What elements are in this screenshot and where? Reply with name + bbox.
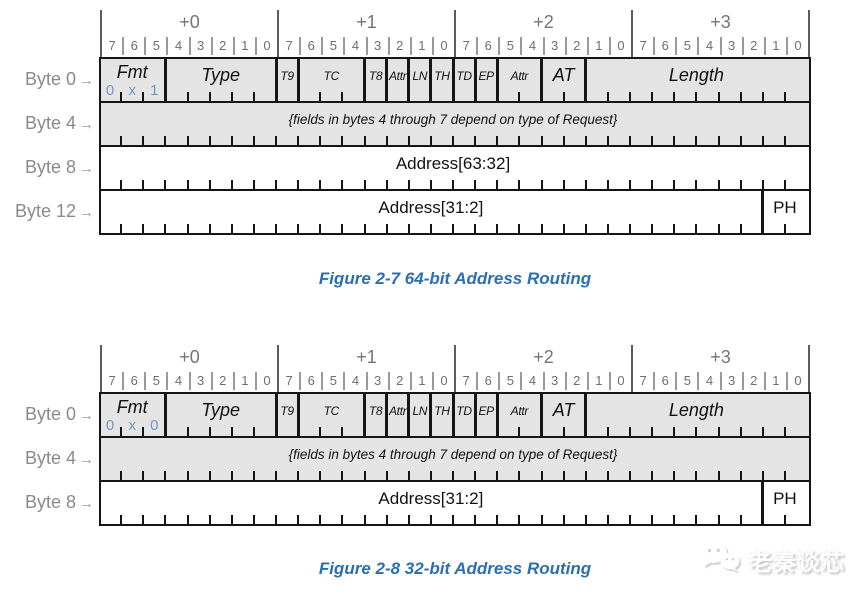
bit-tick bbox=[784, 224, 786, 233]
bit-number-separator bbox=[476, 37, 478, 55]
bit-number: 2 bbox=[389, 371, 411, 391]
bit-number: 0 bbox=[256, 36, 278, 56]
field-label: PH bbox=[773, 489, 797, 509]
bit-tick bbox=[275, 224, 277, 233]
bit-number: 4 bbox=[521, 371, 543, 391]
bit-tick bbox=[297, 224, 299, 233]
figure-2-8-diagram: +0+1+2+376543210765432107654321076543210… bbox=[101, 345, 809, 528]
byte-row: Fmt0x0TypeT9TCT8AttrLNTHTDEPAttrATLength bbox=[99, 392, 811, 438]
bit-tick bbox=[563, 224, 565, 233]
bit-tick bbox=[563, 180, 565, 189]
bit-number-separator bbox=[410, 37, 412, 55]
bit-number-separator bbox=[764, 372, 766, 390]
bit-tick bbox=[164, 180, 166, 189]
bit-tick bbox=[585, 471, 587, 480]
bit-number: 6 bbox=[123, 36, 145, 56]
bit-tick bbox=[474, 471, 476, 480]
bit-number: 0 bbox=[787, 371, 809, 391]
bit-number-separator bbox=[299, 372, 301, 390]
bit-number: 2 bbox=[566, 36, 588, 56]
bit-number: 1 bbox=[765, 36, 787, 56]
bit-number: 2 bbox=[743, 371, 765, 391]
bit-tick bbox=[784, 427, 786, 436]
right-arrow-icon: → bbox=[79, 160, 94, 177]
byte-row-label-text: Byte 4 bbox=[25, 113, 76, 133]
bit-tick bbox=[607, 92, 609, 101]
bit-tick bbox=[740, 224, 742, 233]
bit-tick bbox=[187, 136, 189, 145]
bit-field-cell: TD bbox=[453, 59, 475, 101]
bit-number-separator bbox=[543, 372, 545, 390]
bit-number-separator bbox=[166, 372, 168, 390]
bit-tick bbox=[164, 515, 166, 524]
bit-tick bbox=[187, 515, 189, 524]
bit-tick bbox=[142, 515, 144, 524]
field-label: Fmt bbox=[99, 62, 165, 83]
bit-number-separator bbox=[343, 37, 345, 55]
bit-number-separator bbox=[543, 37, 545, 55]
bit-number: 2 bbox=[212, 371, 234, 391]
bit-number: 7 bbox=[278, 371, 300, 391]
bit-field-cell: Fmt0x1 bbox=[99, 59, 165, 101]
bit-number: 3 bbox=[190, 371, 212, 391]
bit-tick bbox=[496, 471, 498, 480]
bit-field-cell: TC bbox=[298, 394, 364, 436]
bit-number-separator bbox=[122, 37, 124, 55]
bit-number-separator bbox=[343, 372, 345, 390]
watermark: 老秦谈芯 bbox=[700, 540, 845, 579]
bit-tick bbox=[364, 136, 366, 145]
bit-number-separator bbox=[675, 37, 677, 55]
bit-number: 6 bbox=[477, 371, 499, 391]
byte4-note-text: {fields in bytes 4 through 7 depend on t… bbox=[289, 447, 618, 462]
bit-tick bbox=[408, 180, 410, 189]
bit-tick bbox=[673, 92, 675, 101]
bit-number: 4 bbox=[344, 36, 366, 56]
bit-number-separator bbox=[498, 37, 500, 55]
bit-tick bbox=[784, 471, 786, 480]
bit-field-cell: T9 bbox=[276, 394, 298, 436]
bit-tick bbox=[430, 471, 432, 480]
bit-tick bbox=[120, 224, 122, 233]
bit-number: 3 bbox=[544, 36, 566, 56]
bit-number-separator bbox=[520, 37, 522, 55]
bit-field-cell: LN bbox=[409, 59, 431, 101]
bit-tick bbox=[408, 515, 410, 524]
bit-tick bbox=[341, 92, 343, 101]
bit-tick bbox=[364, 180, 366, 189]
bit-number-separator bbox=[653, 37, 655, 55]
bit-number: 3 bbox=[367, 371, 389, 391]
wechat-logo-icon bbox=[700, 540, 742, 579]
field-label: TC bbox=[324, 69, 339, 83]
bit-number-separator bbox=[697, 372, 699, 390]
bit-number: 4 bbox=[698, 371, 720, 391]
bit-tick bbox=[541, 515, 543, 524]
bit-number: 0 bbox=[787, 36, 809, 56]
bit-tick bbox=[607, 224, 609, 233]
bit-number: 5 bbox=[145, 371, 167, 391]
bit-tick bbox=[541, 180, 543, 189]
bit-tick bbox=[474, 224, 476, 233]
bit-number-separator bbox=[321, 372, 323, 390]
byte-row: Address[63:32] bbox=[99, 145, 811, 191]
bit-number: 5 bbox=[322, 371, 344, 391]
bit-tick bbox=[209, 224, 211, 233]
fmt-value-char: 0 bbox=[99, 82, 121, 100]
bit-tick bbox=[187, 224, 189, 233]
bit-tick bbox=[585, 515, 587, 524]
field-label: T9 bbox=[280, 69, 293, 83]
bit-tick bbox=[695, 92, 697, 101]
bit-tick bbox=[695, 471, 697, 480]
byte-offset-label: +0 bbox=[101, 345, 278, 369]
bit-tick bbox=[231, 515, 233, 524]
bit-tick bbox=[718, 471, 720, 480]
bit-tick bbox=[253, 427, 255, 436]
bit-tick bbox=[762, 471, 764, 480]
bit-field-cell: Type bbox=[165, 59, 276, 101]
bit-number-separator bbox=[476, 372, 478, 390]
bit-tick bbox=[784, 180, 786, 189]
byte-row-label: Byte 4→ bbox=[2, 112, 94, 136]
bit-tick bbox=[187, 427, 189, 436]
bit-number: 0 bbox=[610, 371, 632, 391]
bit-tick bbox=[231, 427, 233, 436]
bit-tick bbox=[629, 136, 631, 145]
bit-tick bbox=[496, 180, 498, 189]
bit-tick bbox=[231, 136, 233, 145]
field-label: Attr bbox=[389, 69, 406, 83]
bit-field-cell: Type bbox=[165, 394, 276, 436]
bit-number-separator bbox=[498, 372, 500, 390]
bit-number: 3 bbox=[544, 371, 566, 391]
bit-tick bbox=[541, 471, 543, 480]
bit-tick bbox=[607, 515, 609, 524]
bit-tick bbox=[718, 427, 720, 436]
field-label: TD bbox=[456, 404, 471, 418]
bit-tick bbox=[142, 136, 144, 145]
bit-tick bbox=[585, 180, 587, 189]
bit-tick bbox=[319, 515, 321, 524]
bit-tick bbox=[585, 224, 587, 233]
bit-number: 3 bbox=[190, 36, 212, 56]
bit-tick bbox=[364, 224, 366, 233]
bit-tick bbox=[518, 427, 520, 436]
bit-number: 4 bbox=[344, 371, 366, 391]
field-label: EP bbox=[478, 404, 493, 418]
bit-field-cell: T8 bbox=[365, 59, 387, 101]
bit-number-separator bbox=[255, 37, 257, 55]
bit-tick bbox=[673, 427, 675, 436]
bit-tick bbox=[784, 136, 786, 145]
field-label: TH bbox=[434, 404, 449, 418]
bit-tick bbox=[430, 180, 432, 189]
field-label: AT bbox=[553, 400, 575, 421]
bit-tick bbox=[651, 515, 653, 524]
bit-tick bbox=[209, 92, 211, 101]
bit-tick bbox=[319, 92, 321, 101]
bit-tick bbox=[718, 224, 720, 233]
bit-tick bbox=[762, 136, 764, 145]
bit-number-separator bbox=[432, 37, 434, 55]
page: +0+1+2+376543210765432107654321076543210… bbox=[0, 0, 865, 597]
bit-tick bbox=[695, 515, 697, 524]
bit-number: 4 bbox=[167, 36, 189, 56]
bit-tick bbox=[408, 136, 410, 145]
byte-row: {fields in bytes 4 through 7 depend on t… bbox=[99, 436, 811, 482]
bit-number: 1 bbox=[588, 36, 610, 56]
bit-tick bbox=[231, 224, 233, 233]
bit-tick bbox=[718, 92, 720, 101]
bit-tick bbox=[187, 92, 189, 101]
bit-number: 5 bbox=[676, 36, 698, 56]
bit-tick bbox=[142, 180, 144, 189]
field-label: T8 bbox=[369, 69, 382, 83]
bit-tick bbox=[629, 471, 631, 480]
bit-number-separator bbox=[742, 37, 744, 55]
bit-tick bbox=[607, 471, 609, 480]
bit-tick bbox=[142, 92, 144, 101]
bit-field-cell: Attr bbox=[387, 394, 409, 436]
bit-number: 1 bbox=[234, 371, 256, 391]
bit-number-separator bbox=[144, 372, 146, 390]
field-label: Address[31:2] bbox=[378, 198, 483, 218]
right-arrow-icon: → bbox=[79, 204, 94, 221]
bit-tick bbox=[142, 471, 144, 480]
bit-number-separator bbox=[587, 37, 589, 55]
bit-number: 7 bbox=[455, 36, 477, 56]
field-label: Attr bbox=[511, 69, 528, 83]
bit-number: 3 bbox=[721, 36, 743, 56]
byte-row-label-text: Byte 8 bbox=[25, 157, 76, 177]
bit-number-separator bbox=[565, 372, 567, 390]
bit-tick bbox=[762, 92, 764, 101]
bit-tick bbox=[673, 471, 675, 480]
bit-tick bbox=[762, 427, 764, 436]
bit-tick bbox=[231, 471, 233, 480]
bit-tick bbox=[452, 224, 454, 233]
bit-tick bbox=[253, 471, 255, 480]
bit-number-separator bbox=[675, 372, 677, 390]
bit-tick bbox=[386, 224, 388, 233]
bit-number-separator bbox=[211, 37, 213, 55]
byte-offset-label: +2 bbox=[455, 345, 632, 369]
bit-tick bbox=[297, 136, 299, 145]
bit-tick bbox=[518, 180, 520, 189]
bit-tick bbox=[762, 180, 764, 189]
bit-number-separator bbox=[189, 372, 191, 390]
byte-offset-label: +1 bbox=[278, 345, 455, 369]
bit-number-separator bbox=[366, 372, 368, 390]
bit-tick bbox=[718, 180, 720, 189]
bit-number-separator bbox=[786, 372, 788, 390]
bit-tick bbox=[452, 136, 454, 145]
bit-number: 5 bbox=[322, 36, 344, 56]
field-label: LN bbox=[412, 404, 427, 418]
bit-number: 6 bbox=[654, 371, 676, 391]
bit-number: 6 bbox=[654, 36, 676, 56]
bit-field-cell: TH bbox=[431, 59, 453, 101]
bit-tick bbox=[740, 471, 742, 480]
bit-tick bbox=[740, 136, 742, 145]
bit-number-separator bbox=[211, 372, 213, 390]
bit-tick bbox=[496, 224, 498, 233]
bit-tick bbox=[651, 180, 653, 189]
bit-number: 0 bbox=[433, 36, 455, 56]
bit-number: 7 bbox=[455, 371, 477, 391]
bit-number-separator bbox=[388, 372, 390, 390]
bit-tick bbox=[629, 92, 631, 101]
field-label: Address[63:32] bbox=[396, 154, 510, 174]
bit-number-separator bbox=[122, 372, 124, 390]
bit-field-cell: T8 bbox=[365, 394, 387, 436]
bit-number: 1 bbox=[588, 371, 610, 391]
byte-row-label: Byte 0→ bbox=[2, 403, 94, 427]
bit-tick bbox=[629, 515, 631, 524]
field-label: T9 bbox=[280, 404, 293, 418]
bit-tick bbox=[364, 471, 366, 480]
bit-number-separator bbox=[520, 372, 522, 390]
bit-number-separator bbox=[720, 37, 722, 55]
bit-tick bbox=[319, 471, 321, 480]
figure-2-7-caption: Figure 2-7 64-bit Address Routing bbox=[101, 269, 809, 289]
byte-row-label-text: Byte 0 bbox=[25, 404, 76, 424]
bit-tick bbox=[209, 471, 211, 480]
bit-number-separator bbox=[299, 37, 301, 55]
field-label: TC bbox=[324, 404, 339, 418]
field-label: Attr bbox=[511, 404, 528, 418]
bit-tick bbox=[275, 180, 277, 189]
bit-field-cell: Attr bbox=[387, 59, 409, 101]
bit-number: 0 bbox=[610, 36, 632, 56]
fmt-value-char: x bbox=[121, 417, 143, 435]
bit-number: 1 bbox=[411, 371, 433, 391]
bit-tick bbox=[695, 136, 697, 145]
bit-number-separator bbox=[587, 372, 589, 390]
bit-tick bbox=[209, 180, 211, 189]
byte-offset-label: +0 bbox=[101, 10, 278, 34]
bit-tick bbox=[430, 224, 432, 233]
bit-number-separator bbox=[233, 37, 235, 55]
bit-tick bbox=[629, 427, 631, 436]
bit-tick bbox=[386, 180, 388, 189]
bit-tick bbox=[209, 427, 211, 436]
bit-tick bbox=[563, 471, 565, 480]
bit-number-separator bbox=[609, 372, 611, 390]
right-arrow-icon: → bbox=[79, 72, 94, 89]
bit-tick bbox=[718, 136, 720, 145]
bit-number-separator bbox=[410, 372, 412, 390]
bit-tick bbox=[673, 515, 675, 524]
bit-tick bbox=[364, 515, 366, 524]
bit-tick bbox=[341, 224, 343, 233]
bit-tick bbox=[541, 224, 543, 233]
bit-number-separator bbox=[233, 372, 235, 390]
fmt-value-char: 0 bbox=[143, 417, 165, 435]
bit-number-separator bbox=[189, 37, 191, 55]
bit-number: 6 bbox=[300, 371, 322, 391]
bit-tick bbox=[120, 515, 122, 524]
bit-number: 7 bbox=[101, 36, 123, 56]
watermark-text: 老秦谈芯 bbox=[749, 543, 845, 577]
bit-number-separator bbox=[697, 37, 699, 55]
bit-number-separator bbox=[653, 372, 655, 390]
byte-row-label: Byte 0→ bbox=[2, 68, 94, 92]
bit-field-cell: Fmt0x0 bbox=[99, 394, 165, 436]
bit-field-cell: LN bbox=[409, 394, 431, 436]
bit-number: 2 bbox=[389, 36, 411, 56]
bit-number: 6 bbox=[300, 36, 322, 56]
field-label: TD bbox=[456, 69, 471, 83]
field-label: Length bbox=[669, 400, 724, 421]
bit-tick bbox=[253, 136, 255, 145]
bit-number: 6 bbox=[477, 36, 499, 56]
figure-2-7-diagram: +0+1+2+376543210765432107654321076543210… bbox=[101, 10, 809, 237]
bit-number: 3 bbox=[721, 371, 743, 391]
byte-row-label-text: Byte 0 bbox=[25, 69, 76, 89]
bit-tick bbox=[187, 180, 189, 189]
field-label: TH bbox=[434, 69, 449, 83]
bit-tick bbox=[695, 224, 697, 233]
bit-tick bbox=[187, 471, 189, 480]
right-arrow-icon: → bbox=[79, 116, 94, 133]
byte-offset-label: +2 bbox=[455, 10, 632, 34]
bit-tick bbox=[740, 92, 742, 101]
bit-number: 5 bbox=[499, 371, 521, 391]
bit-number-separator bbox=[388, 37, 390, 55]
bit-tick bbox=[673, 180, 675, 189]
bit-field-cell: TH bbox=[431, 394, 453, 436]
bit-number-separator bbox=[764, 37, 766, 55]
field-label: Type bbox=[201, 400, 240, 421]
fmt-value-char: x bbox=[121, 82, 143, 100]
bit-tick bbox=[607, 136, 609, 145]
bit-tick bbox=[563, 136, 565, 145]
bit-tick bbox=[607, 427, 609, 436]
bit-tick bbox=[386, 515, 388, 524]
bit-tick bbox=[209, 515, 211, 524]
bit-tick bbox=[740, 515, 742, 524]
bit-tick bbox=[297, 471, 299, 480]
byte-row-label: Byte 8→ bbox=[2, 156, 94, 180]
bit-number: 5 bbox=[676, 371, 698, 391]
bit-tick bbox=[629, 224, 631, 233]
bit-tick bbox=[651, 92, 653, 101]
bit-tick bbox=[120, 92, 122, 101]
bit-tick bbox=[319, 180, 321, 189]
field-label: Length bbox=[669, 65, 724, 86]
bit-tick bbox=[740, 427, 742, 436]
bit-tick bbox=[341, 136, 343, 145]
bit-tick bbox=[452, 515, 454, 524]
bit-number-separator bbox=[609, 37, 611, 55]
bit-tick bbox=[695, 427, 697, 436]
bit-number: 4 bbox=[698, 36, 720, 56]
bit-number: 3 bbox=[367, 36, 389, 56]
bit-tick bbox=[651, 136, 653, 145]
bit-tick bbox=[563, 515, 565, 524]
fmt-value-char: 1 bbox=[143, 82, 165, 100]
bit-number-separator bbox=[742, 372, 744, 390]
bit-field-cell: T9 bbox=[276, 59, 298, 101]
bit-tick bbox=[518, 224, 520, 233]
bit-tick bbox=[408, 471, 410, 480]
byte-row-label: Byte 12→ bbox=[2, 200, 94, 224]
bit-tick bbox=[430, 515, 432, 524]
bit-number: 1 bbox=[234, 36, 256, 56]
bit-field-cell: EP bbox=[475, 59, 497, 101]
